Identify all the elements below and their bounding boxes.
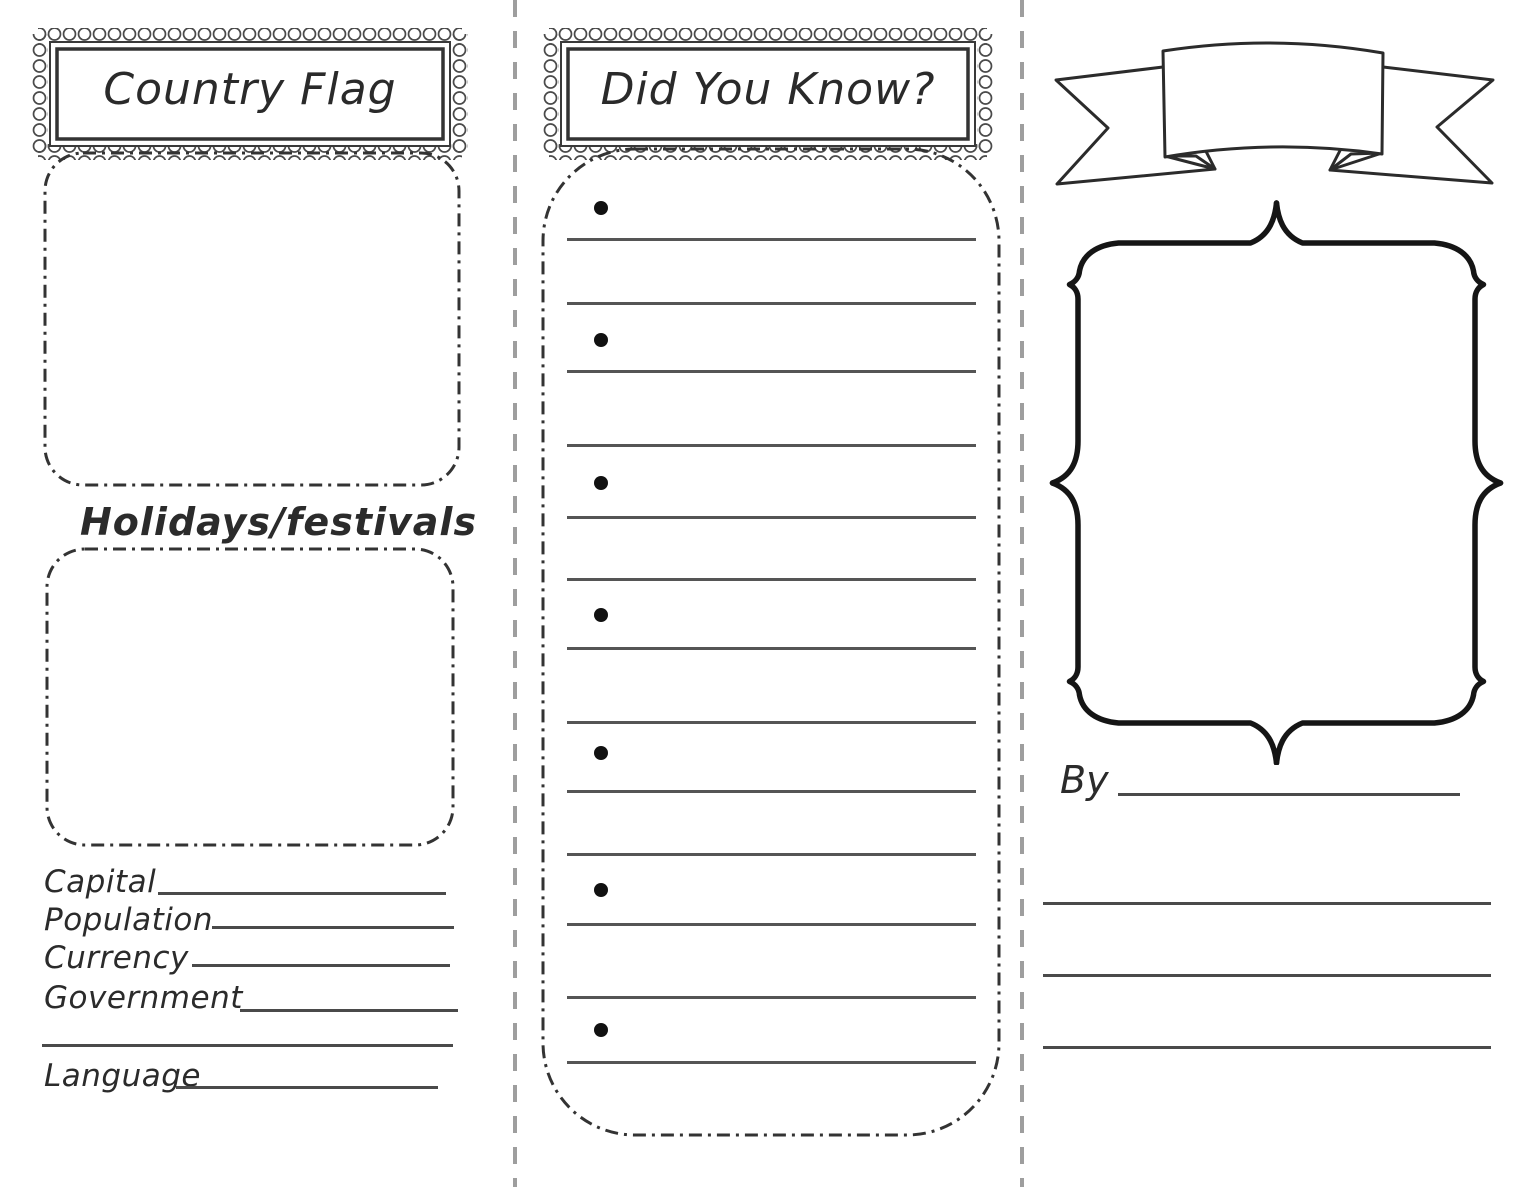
- ruled-line: [567, 996, 976, 999]
- population-field-underline: [212, 926, 454, 929]
- ruled-line: [567, 923, 976, 926]
- ribbon-banner: [1050, 34, 1500, 194]
- bullet-dot-6: [594, 883, 608, 897]
- country-flag-title-frame: Country Flag: [32, 26, 468, 162]
- ruled-line: [567, 721, 976, 724]
- did-you-know-box: [540, 146, 1002, 1138]
- bullet-dot-3: [594, 476, 608, 490]
- population-field-label: Population: [44, 902, 213, 938]
- by-underline: [1118, 793, 1460, 796]
- extra-field-underline: [42, 1044, 453, 1047]
- trifold-brochure-template: Country Flag Holidays/festivals Capital …: [0, 0, 1536, 1187]
- ruled-line: [567, 370, 976, 373]
- ruled-line: [567, 516, 976, 519]
- government-field-underline: [240, 1009, 458, 1012]
- currency-field-label: Currency: [44, 940, 189, 976]
- ruled-line: [567, 578, 976, 581]
- ruled-line: [567, 444, 976, 447]
- ruled-line: [567, 238, 976, 241]
- did-you-know-title-frame: Did You Know?: [543, 26, 993, 162]
- fold-line-right: [1020, 0, 1024, 1187]
- footer-line-2: [1043, 974, 1491, 977]
- footer-line-3: [1043, 1046, 1491, 1049]
- left-panel-title: Country Flag: [32, 64, 468, 115]
- bullet-dot-1: [594, 201, 608, 215]
- flag-drawing-box: [42, 150, 462, 488]
- holidays-festivals-heading: Holidays/festivals: [80, 500, 477, 544]
- middle-panel-title: Did You Know?: [543, 64, 993, 115]
- currency-field-underline: [192, 964, 450, 967]
- ruled-line: [567, 302, 976, 305]
- bullet-dot-4: [594, 608, 608, 622]
- by-label: By: [1060, 758, 1109, 802]
- ruled-line: [567, 1061, 976, 1064]
- fold-line-left: [513, 0, 517, 1187]
- bullet-dot-7: [594, 1023, 608, 1037]
- ruled-line: [567, 853, 976, 856]
- government-field-label: Government: [44, 980, 243, 1016]
- language-field-underline: [176, 1086, 438, 1089]
- bracket-frame: [1040, 195, 1510, 765]
- ruled-line: [567, 790, 976, 793]
- capital-field-underline: [158, 892, 446, 895]
- bullet-dot-2: [594, 333, 608, 347]
- ribbon-center-panel: [1163, 43, 1383, 157]
- ruled-line: [567, 647, 976, 650]
- bullet-dot-5: [594, 746, 608, 760]
- capital-field-label: Capital: [44, 864, 156, 900]
- holidays-festivals-box: [44, 546, 456, 848]
- footer-line-1: [1043, 902, 1491, 905]
